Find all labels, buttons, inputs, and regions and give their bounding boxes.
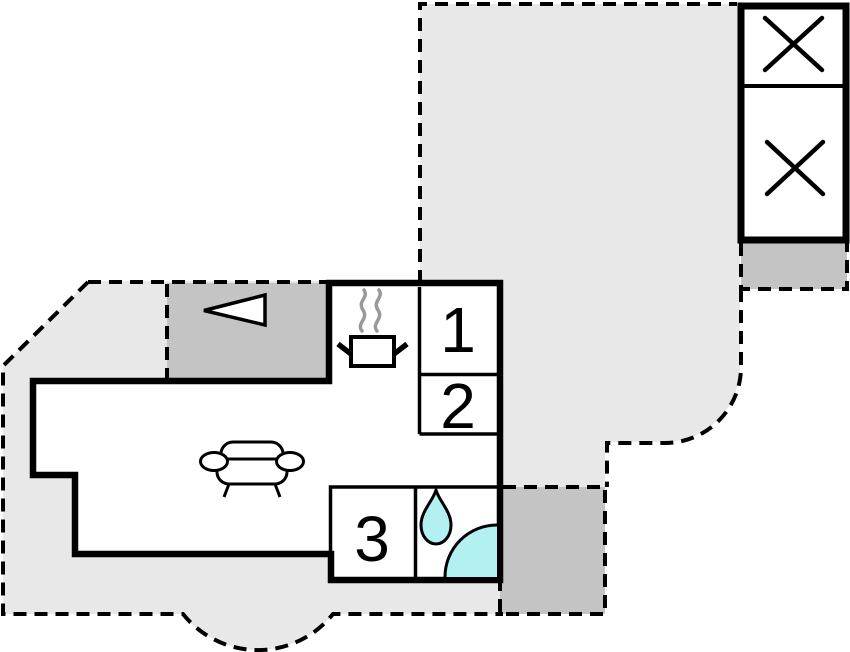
room-1-label: 1	[440, 294, 476, 366]
room-3-label: 3	[354, 503, 390, 575]
pot-body	[351, 337, 394, 366]
floor-plan-drawing: 1 2 3	[0, 0, 850, 652]
room-2-label: 2	[440, 370, 476, 442]
patio-dark-area-bottom	[500, 487, 605, 614]
annex-dark-area	[741, 243, 847, 289]
sofa-armrest-left	[201, 453, 228, 471]
annex-building	[741, 6, 846, 240]
sofa-armrest-right	[277, 453, 304, 471]
floor-plan-page: 1 2 3	[0, 0, 850, 652]
